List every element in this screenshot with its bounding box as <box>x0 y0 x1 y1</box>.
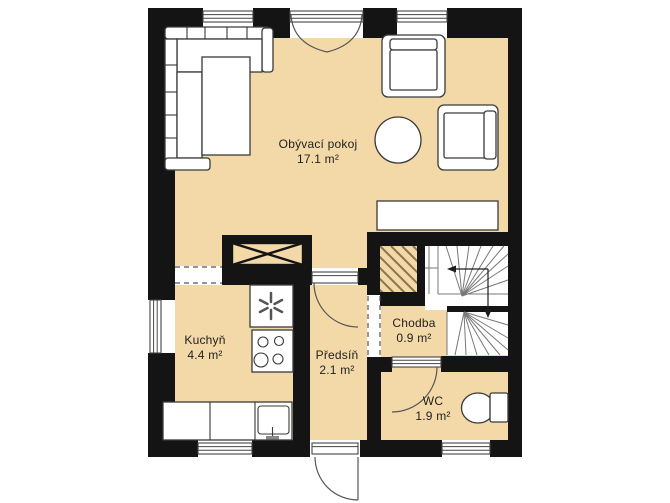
room-area: 2.1 m² <box>316 363 359 378</box>
opening-living-kitchen <box>175 266 222 285</box>
armchair-right <box>438 105 498 170</box>
window-left-kitchen <box>148 300 175 353</box>
stove <box>252 330 293 372</box>
window-bottom-kitchen <box>198 440 252 457</box>
room-name: Chodba <box>392 316 435 331</box>
room-label-hall: Předsíň 2.1 m² <box>316 348 359 378</box>
window-bottom-wc <box>442 440 490 457</box>
room-area: 4.4 m² <box>184 348 225 363</box>
floor-plan-drawing <box>0 0 670 503</box>
room-area: 17.1 m² <box>279 152 358 167</box>
room-name: Kuchyň <box>184 333 225 348</box>
stair-landing-edge <box>447 306 508 312</box>
chimney-box <box>232 243 303 265</box>
room-label-corridor: Chodba 0.9 m² <box>392 316 435 346</box>
room-area: 1.9 m² <box>415 409 450 424</box>
room-name: WC <box>415 394 450 409</box>
kitchen-counter <box>163 402 292 440</box>
window-top-right <box>397 8 447 38</box>
room-name: Předsíň <box>316 348 359 363</box>
floor-plan: Obývací pokoj 17.1 m² Kuchyň 4.4 m² Před… <box>0 0 670 503</box>
sideboard <box>377 201 498 230</box>
room-label-wc: WC 1.9 m² <box>415 394 450 424</box>
round-table <box>375 117 421 163</box>
entrance-door <box>310 440 360 500</box>
toilet <box>462 393 509 423</box>
room-label-living: Obývací pokoj 17.1 m² <box>279 137 358 167</box>
opening-hall-corridor <box>367 295 381 357</box>
room-name: Obývací pokoj <box>279 137 358 152</box>
sofa-chaise <box>202 57 250 155</box>
room-area: 0.9 m² <box>392 331 435 346</box>
water-heater <box>250 285 293 327</box>
room-label-kitchen: Kuchyň 4.4 m² <box>184 333 225 363</box>
armchair-top <box>382 35 445 97</box>
